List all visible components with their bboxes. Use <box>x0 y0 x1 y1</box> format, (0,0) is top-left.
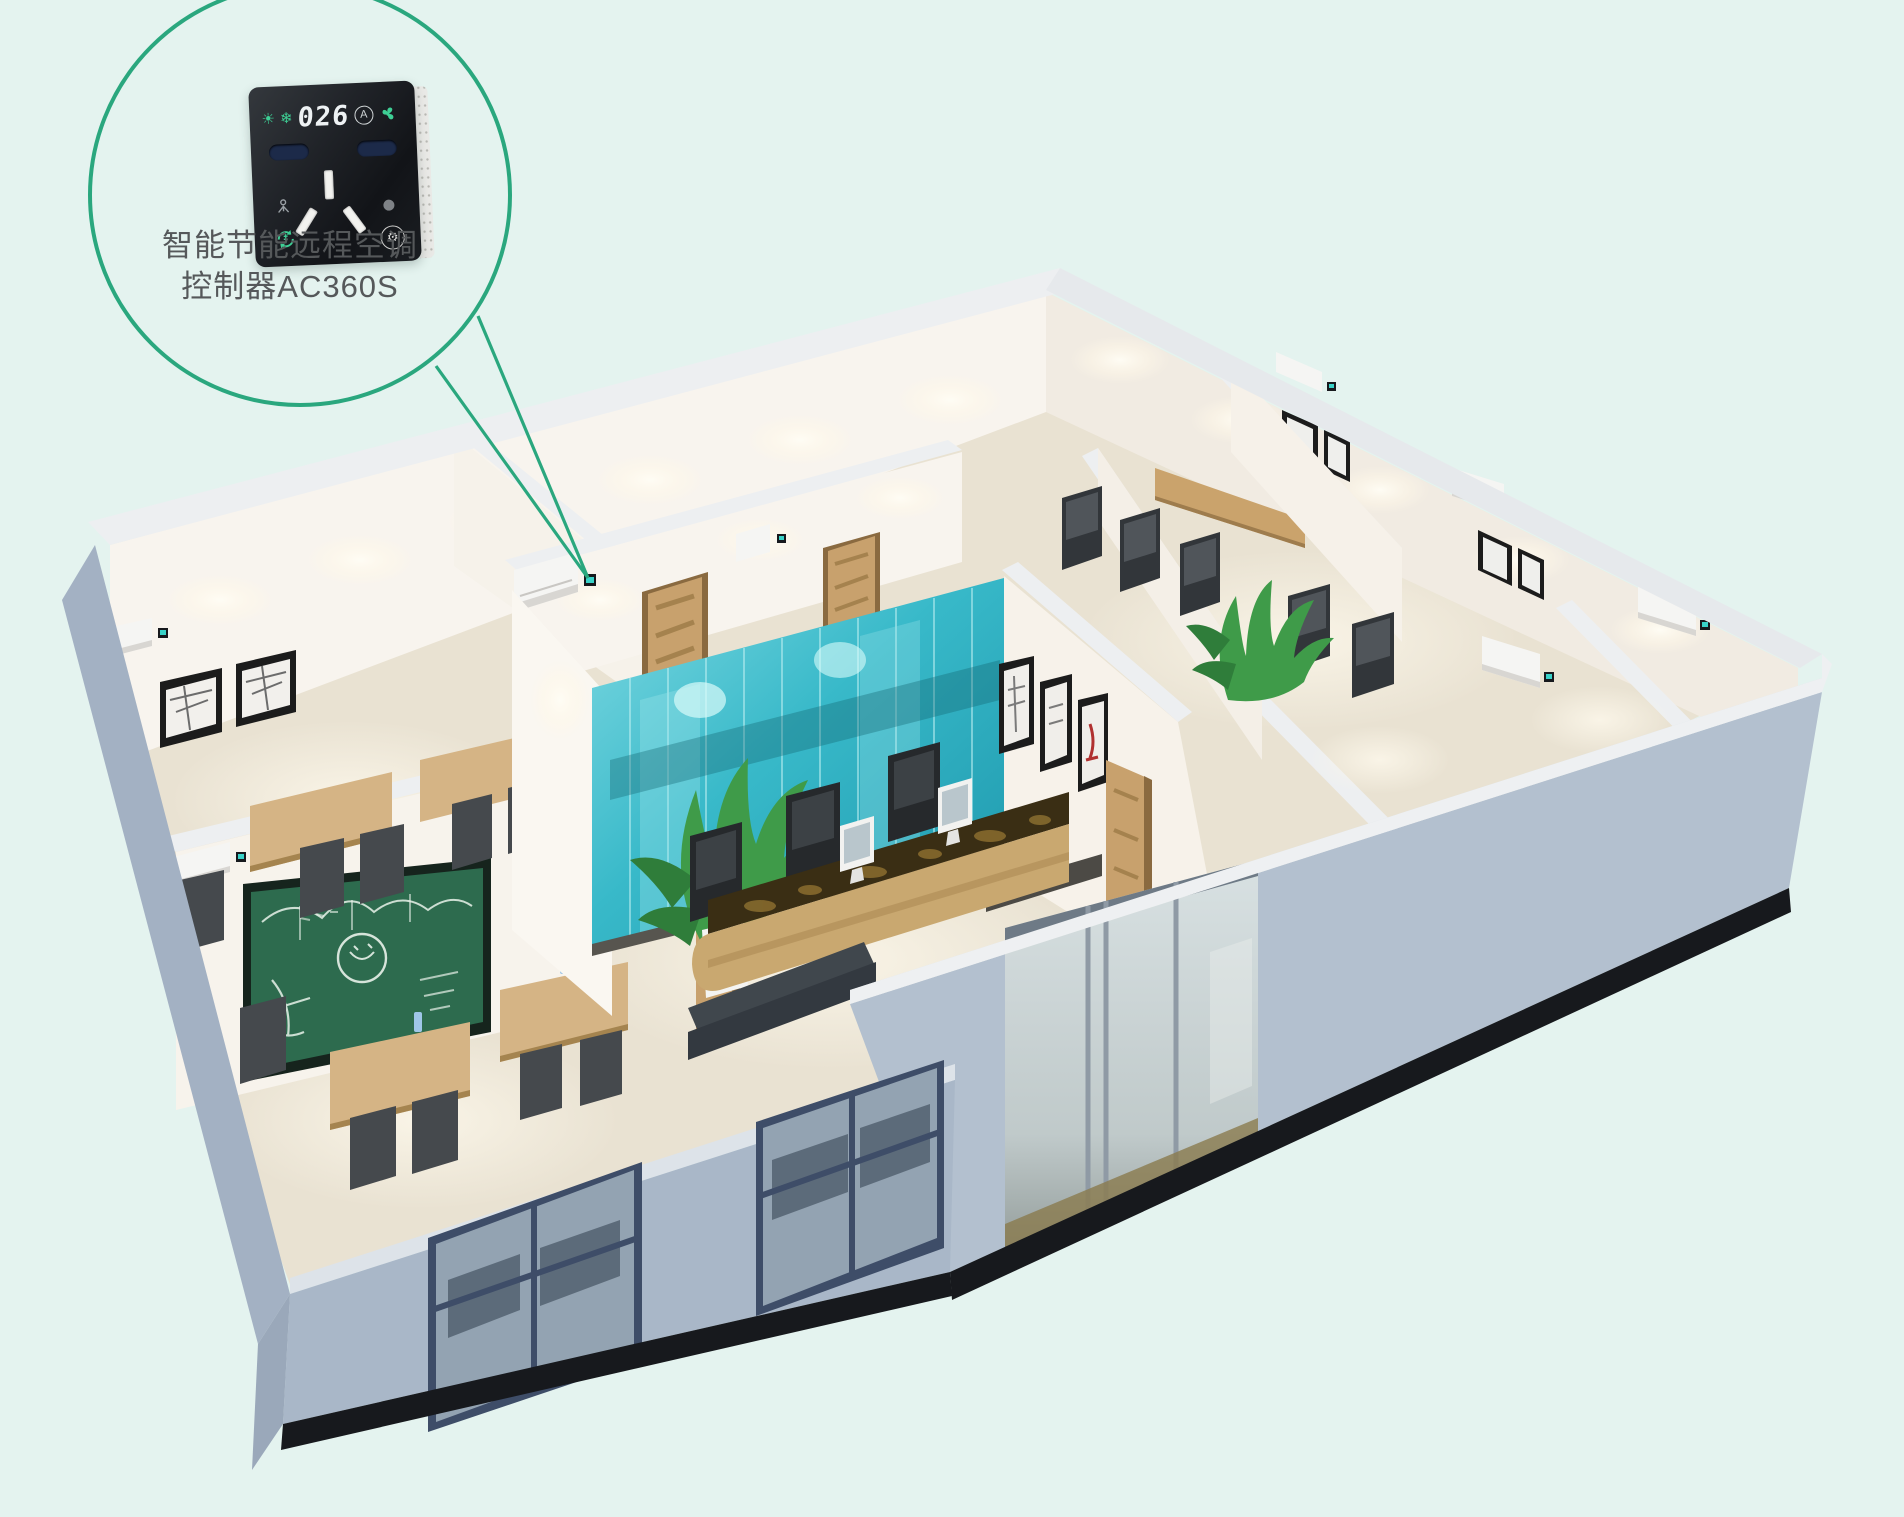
sun-icon: ☀ <box>261 111 275 127</box>
snowflake-icon: ❄ <box>280 110 293 126</box>
device-display-row: ☀ ❄ 026 A <box>261 97 404 135</box>
callout-label-line1: 智能节能远程空调 <box>110 220 470 265</box>
fan-icon <box>378 104 398 124</box>
callout-label-line2: 控制器AC360S <box>110 261 470 306</box>
person-icon <box>275 198 292 215</box>
product-illustration: ☀ ❄ 026 A <box>0 0 1904 1517</box>
ir-sensor-left <box>269 143 310 161</box>
socket-slot-top[interactable] <box>324 170 334 199</box>
indicator-dot <box>383 199 394 210</box>
ir-sensor-right <box>357 139 398 157</box>
auto-mode-icon: A <box>354 105 374 125</box>
temperature-display: 026 <box>297 102 350 131</box>
